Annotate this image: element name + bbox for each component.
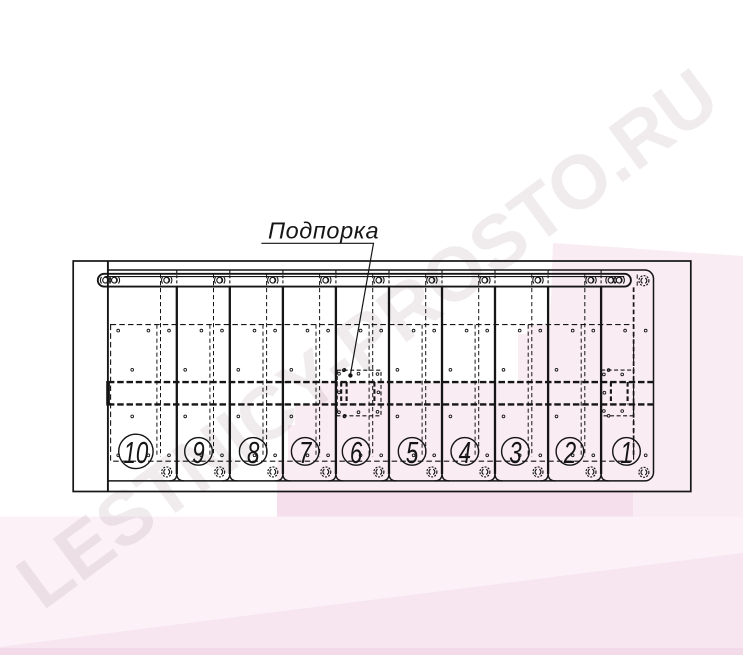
svg-text:4: 4 xyxy=(459,435,471,469)
svg-text:5: 5 xyxy=(406,435,419,469)
svg-text:9: 9 xyxy=(192,435,204,469)
svg-text:6: 6 xyxy=(350,435,363,469)
svg-text:7: 7 xyxy=(299,435,312,469)
svg-text:2: 2 xyxy=(563,435,576,469)
svg-text:10: 10 xyxy=(123,435,148,469)
svg-text:3: 3 xyxy=(509,435,521,469)
svg-text:1: 1 xyxy=(620,435,632,469)
svg-text:8: 8 xyxy=(247,435,259,469)
svg-text:Подпорка: Подпорка xyxy=(268,217,379,243)
